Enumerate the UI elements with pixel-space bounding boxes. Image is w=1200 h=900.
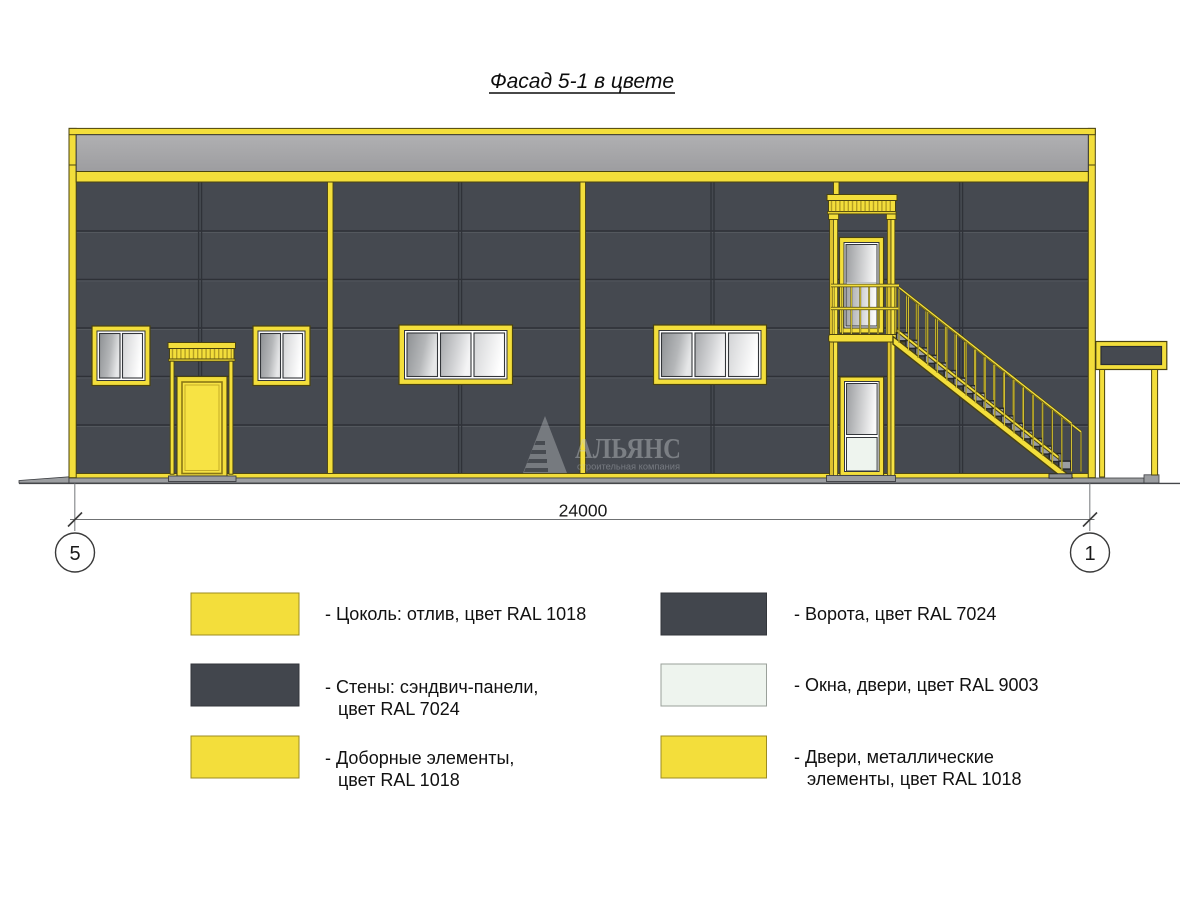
svg-text:- Доборные элементы,: - Доборные элементы, [325, 748, 514, 768]
svg-text:- Стены: сэндвич-панели,: - Стены: сэндвич-панели, [325, 677, 538, 697]
svg-text:АЛЬЯНС: АЛЬЯНС [575, 434, 681, 465]
svg-text:строительная компания: строительная компания [577, 462, 680, 472]
svg-text:5: 5 [69, 543, 80, 565]
svg-text:24000: 24000 [559, 501, 608, 521]
svg-text:цвет RAL 1018: цвет RAL 1018 [338, 770, 460, 790]
svg-text:- Двери, металлические: - Двери, металлические [794, 747, 994, 767]
svg-text:элементы, цвет RAL 1018: элементы, цвет RAL 1018 [807, 769, 1022, 789]
svg-text:- Ворота, цвет RAL 7024: - Ворота, цвет RAL 7024 [794, 604, 996, 624]
svg-text:- Окна, двери, цвет RAL 9003: - Окна, двери, цвет RAL 9003 [794, 675, 1039, 695]
svg-text:1: 1 [1084, 543, 1095, 565]
svg-text:- Цоколь: отлив, цвет RAL 1018: - Цоколь: отлив, цвет RAL 1018 [325, 604, 586, 624]
svg-text:Фасад 5-1 в цвете: Фасад 5-1 в цвете [490, 70, 674, 93]
svg-text:цвет RAL 7024: цвет RAL 7024 [338, 699, 460, 719]
